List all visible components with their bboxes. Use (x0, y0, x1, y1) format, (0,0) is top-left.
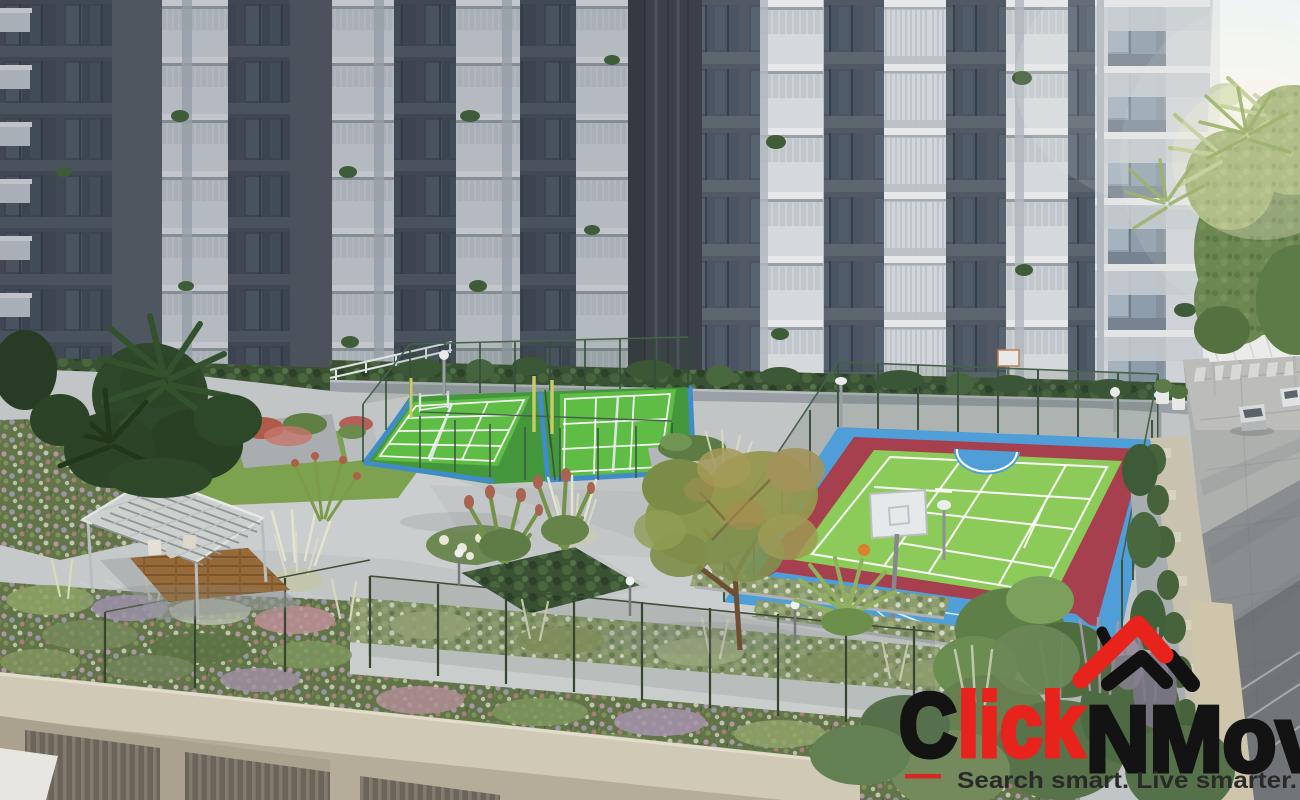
svg-text:C: C (899, 676, 957, 776)
svg-text:lick: lick (958, 676, 1085, 776)
svg-text:Search smart. Live smarter.: Search smart. Live smarter. (957, 767, 1297, 793)
